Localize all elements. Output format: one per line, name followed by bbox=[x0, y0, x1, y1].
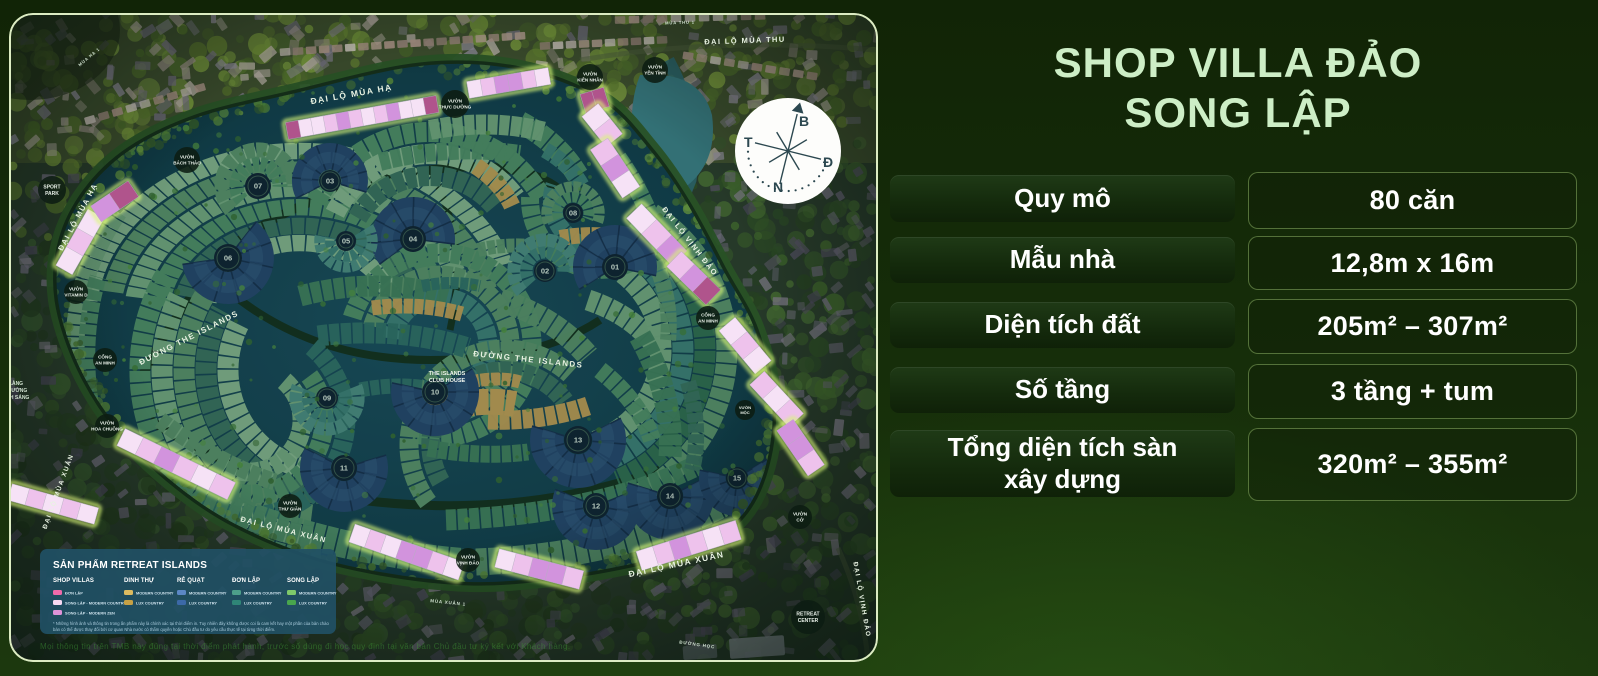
svg-text:PARK: PARK bbox=[45, 191, 59, 197]
svg-text:CLUB HOUSE: CLUB HOUSE bbox=[429, 378, 466, 384]
svg-text:VỊNH ĐẢO: VỊNH ĐẢO bbox=[457, 560, 480, 566]
svg-text:HOA CHUÔNG: HOA CHUÔNG bbox=[91, 425, 123, 432]
svg-text:MODERN COUNTRY: MODERN COUNTRY bbox=[189, 590, 227, 595]
svg-text:T: T bbox=[744, 134, 753, 150]
svg-text:MỘC: MỘC bbox=[740, 410, 749, 415]
svg-text:VƯỜN: VƯỜN bbox=[648, 63, 663, 70]
svg-text:VƯỜN: VƯỜN bbox=[283, 499, 298, 506]
svg-text:MODERN COUNTRY: MODERN COUNTRY bbox=[136, 590, 174, 595]
svg-text:LUX COUNTRY: LUX COUNTRY bbox=[244, 600, 272, 605]
svg-text:Mọi thông tin trên TMB này đún: Mọi thông tin trên TMB này đúng tại thời… bbox=[40, 642, 571, 651]
svg-text:CỞ: CỞ bbox=[796, 517, 803, 523]
svg-text:TRƯỜNG: TRƯỜNG bbox=[9, 386, 27, 394]
svg-text:B: B bbox=[799, 113, 809, 129]
svg-text:VƯỜN: VƯỜN bbox=[461, 553, 476, 560]
svg-text:bán có thể được thay đổi bởi c: bán có thể được thay đổi bởi cơ quan Nhà… bbox=[53, 627, 275, 632]
svg-text:MODERN COUNTRY: MODERN COUNTRY bbox=[244, 590, 282, 595]
svg-text:LUX COUNTRY: LUX COUNTRY bbox=[136, 600, 164, 605]
svg-text:ĐƠN LẬP: ĐƠN LẬP bbox=[232, 577, 260, 584]
svg-text:RETREAT: RETREAT bbox=[796, 612, 819, 618]
svg-text:SONG LẬP: SONG LẬP bbox=[287, 577, 319, 584]
svg-text:SPORT: SPORT bbox=[43, 185, 60, 191]
svg-text:N: N bbox=[773, 179, 783, 195]
svg-text:THE ISLANDS: THE ISLANDS bbox=[429, 371, 466, 377]
svg-text:AN MINH: AN MINH bbox=[698, 319, 718, 324]
svg-text:Đ: Đ bbox=[823, 154, 833, 170]
svg-text:MÙA THU 1: MÙA THU 1 bbox=[665, 19, 695, 25]
svg-text:DINH THỰ: DINH THỰ bbox=[124, 578, 154, 584]
svg-text:VƯỜN: VƯỜN bbox=[448, 97, 463, 104]
svg-text:THƯ GIÃN: THƯ GIÃN bbox=[279, 506, 302, 512]
svg-text:VƯỜN: VƯỜN bbox=[69, 285, 84, 292]
svg-text:VƯỜN: VƯỜN bbox=[793, 510, 808, 517]
svg-text:YÊN TĨNH: YÊN TĨNH bbox=[644, 69, 666, 76]
svg-text:LÀNG: LÀNG bbox=[9, 380, 23, 387]
svg-text:THỰC DƯỠNG: THỰC DƯỠNG bbox=[439, 104, 472, 110]
svg-text:VƯỜN: VƯỜN bbox=[583, 70, 598, 77]
svg-text:* Những hình ảnh và thông tin: * Những hình ảnh và thông tin trong ấn p… bbox=[53, 621, 329, 626]
svg-text:KIÊN NHẪN: KIÊN NHẪN bbox=[577, 76, 603, 83]
svg-text:VƯỜN: VƯỜN bbox=[180, 153, 195, 160]
svg-text:SONG LẬP - MODERN ZEN: SONG LẬP - MODERN ZEN bbox=[65, 610, 115, 615]
svg-text:SONG LẬP - MODERN COUNTRY: SONG LẬP - MODERN COUNTRY bbox=[65, 600, 127, 605]
svg-text:SHOP VILLAS: SHOP VILLAS bbox=[53, 578, 94, 584]
svg-text:LUX COUNTRY: LUX COUNTRY bbox=[189, 600, 217, 605]
svg-text:CENTER: CENTER bbox=[798, 618, 819, 624]
svg-text:BÁCH THẢO: BÁCH THẢO bbox=[173, 160, 201, 166]
svg-text:ÁNH SÁNG: ÁNH SÁNG bbox=[9, 394, 29, 401]
svg-text:VITAMIN D: VITAMIN D bbox=[64, 293, 88, 298]
svg-text:MODERN COUNTRY: MODERN COUNTRY bbox=[299, 590, 337, 595]
svg-text:AN MINH: AN MINH bbox=[95, 361, 115, 366]
svg-text:RẺ QUẠT: RẺ QUẠT bbox=[177, 577, 205, 584]
svg-text:SẢN PHẨM RETREAT ISLANDS: SẢN PHẨM RETREAT ISLANDS bbox=[53, 558, 207, 571]
svg-text:LUX COUNTRY: LUX COUNTRY bbox=[299, 600, 327, 605]
svg-text:CỔNG: CỔNG bbox=[98, 354, 112, 360]
svg-text:ĐƠN LẬP: ĐƠN LẬP bbox=[65, 590, 83, 595]
svg-text:CỔNG: CỔNG bbox=[701, 312, 715, 318]
svg-text:VƯỜN: VƯỜN bbox=[100, 419, 115, 426]
